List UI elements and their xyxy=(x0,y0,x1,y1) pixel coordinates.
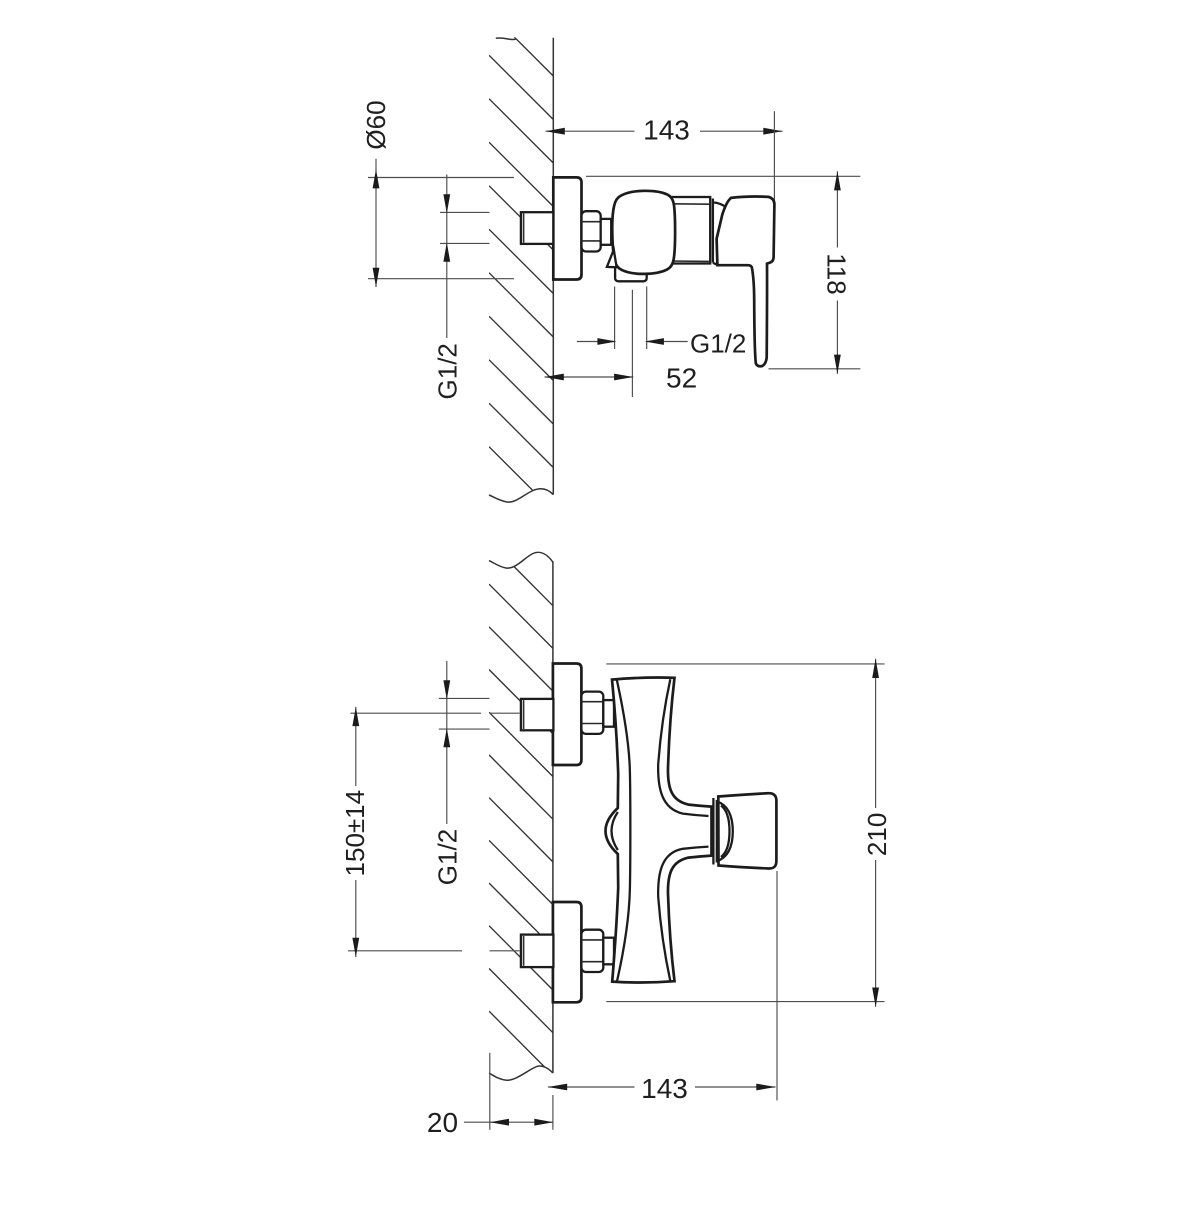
svg-text:G1/2: G1/2 xyxy=(433,343,463,399)
svg-text:150±14: 150±14 xyxy=(340,790,370,877)
svg-text:143: 143 xyxy=(643,115,690,146)
svg-text:52: 52 xyxy=(666,363,697,394)
svg-text:143: 143 xyxy=(641,1073,688,1104)
svg-text:G1/2: G1/2 xyxy=(690,329,746,359)
svg-text:Ø60: Ø60 xyxy=(361,100,391,149)
svg-text:20: 20 xyxy=(427,1107,458,1138)
svg-text:G1/2: G1/2 xyxy=(433,829,463,885)
svg-text:118: 118 xyxy=(822,253,852,294)
svg-text:210: 210 xyxy=(862,813,892,856)
